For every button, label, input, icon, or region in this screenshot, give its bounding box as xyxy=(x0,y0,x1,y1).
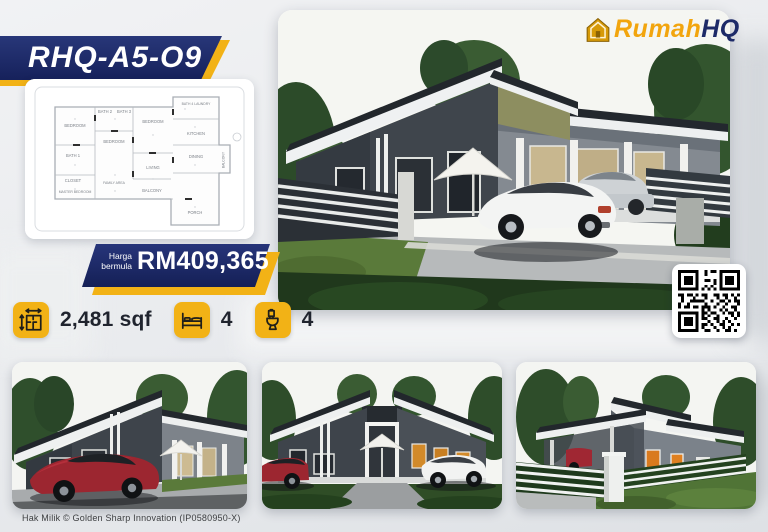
room-label: BALCONY xyxy=(142,188,162,193)
thumbnail-1-illustration xyxy=(12,362,247,509)
brand-name-rumah: Rumah xyxy=(614,15,701,44)
qr-pattern xyxy=(678,270,740,332)
price-banner: Harga bermula RM409,365 xyxy=(82,244,287,302)
main-house-render xyxy=(278,10,730,310)
room-label: PORCH xyxy=(188,210,203,215)
spec-bedrooms: 4 xyxy=(174,302,233,338)
flyer-canvas: Rumah HQ RHQ-A5-O9 BATH 2 BATH 3 BEDROOM xyxy=(0,0,768,532)
floor-plan-card: BATH 2 BATH 3 BEDROOM BEDROOM BEDROOM BA… xyxy=(25,79,254,239)
price-prefix: Harga bermula xyxy=(98,252,132,272)
copyright-text: Hak Milik © Golden Sharp Innovation (IP0… xyxy=(22,513,241,523)
area-value: 2,481 sqf xyxy=(60,308,152,332)
model-code: RHQ-A5-O9 xyxy=(28,36,202,80)
thumbnail-2-illustration xyxy=(262,362,502,509)
room-label: MASTER BEDROOM xyxy=(59,190,92,194)
toilet-icon xyxy=(255,302,291,338)
room-label: BATH 2 xyxy=(98,109,113,114)
room-label: BEDROOM xyxy=(142,119,164,124)
room-label: BATH 3 xyxy=(117,109,132,114)
price-content: Harga bermula RM409,365 xyxy=(98,247,269,276)
hero-house-illustration xyxy=(278,10,730,310)
room-label: BATH 1 xyxy=(66,153,81,158)
spec-bathrooms: 4 xyxy=(255,302,314,338)
brand-logo: Rumah HQ xyxy=(585,15,740,44)
floor-plan-drawing: BATH 2 BATH 3 BEDROOM BEDROOM BEDROOM BA… xyxy=(25,79,254,239)
room-label: FAMILY AREA xyxy=(103,181,125,185)
room-label: DINING xyxy=(189,154,203,159)
house-logo-icon xyxy=(585,17,611,43)
room-label: KITCHEN xyxy=(187,131,205,136)
thumbnail-view-3[interactable] xyxy=(516,362,756,509)
brand-name-hq: HQ xyxy=(701,15,740,44)
room-label: BATH 4 LAUNDRY xyxy=(182,102,211,106)
bed-icon xyxy=(174,302,210,338)
spec-list: 2,481 sqf 4 4 xyxy=(13,302,313,338)
thumbnail-view-1[interactable] xyxy=(12,362,247,509)
room-label: LIVING xyxy=(146,165,159,170)
thumbnail-3-illustration xyxy=(516,362,756,509)
qr-code[interactable] xyxy=(672,264,746,338)
room-label: CLOSET xyxy=(65,178,82,183)
room-label: BEDROOM xyxy=(103,139,125,144)
room-label: BALCONY xyxy=(222,151,226,168)
room-label: BEDROOM xyxy=(64,123,86,128)
thumbnail-view-2[interactable] xyxy=(262,362,502,509)
area-measure-icon xyxy=(13,302,49,338)
price-amount: RM409,365 xyxy=(137,247,269,276)
bedroom-count: 4 xyxy=(221,308,233,332)
spec-area: 2,481 sqf xyxy=(13,302,152,338)
bathroom-count: 4 xyxy=(302,308,314,332)
